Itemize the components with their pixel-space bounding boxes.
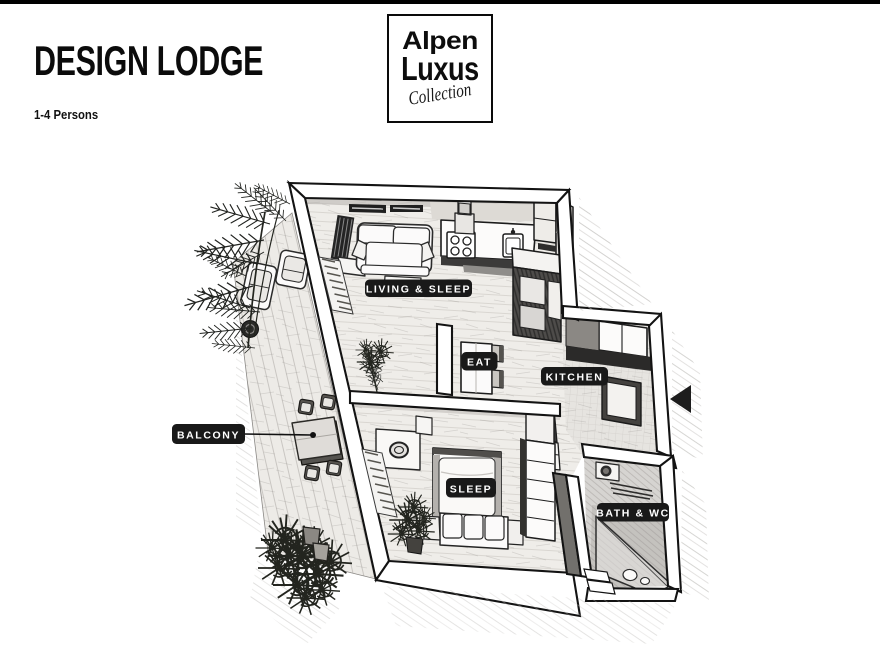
svg-text:KITCHEN: KITCHEN [546, 372, 604, 384]
svg-text:SLEEP: SLEEP [450, 484, 492, 496]
svg-text:BATH & WC: BATH & WC [596, 508, 670, 520]
svg-text:EAT: EAT [467, 357, 492, 369]
svg-text:BALCONY: BALCONY [177, 430, 240, 442]
svg-text:LIVING & SLEEP: LIVING & SLEEP [366, 284, 471, 296]
